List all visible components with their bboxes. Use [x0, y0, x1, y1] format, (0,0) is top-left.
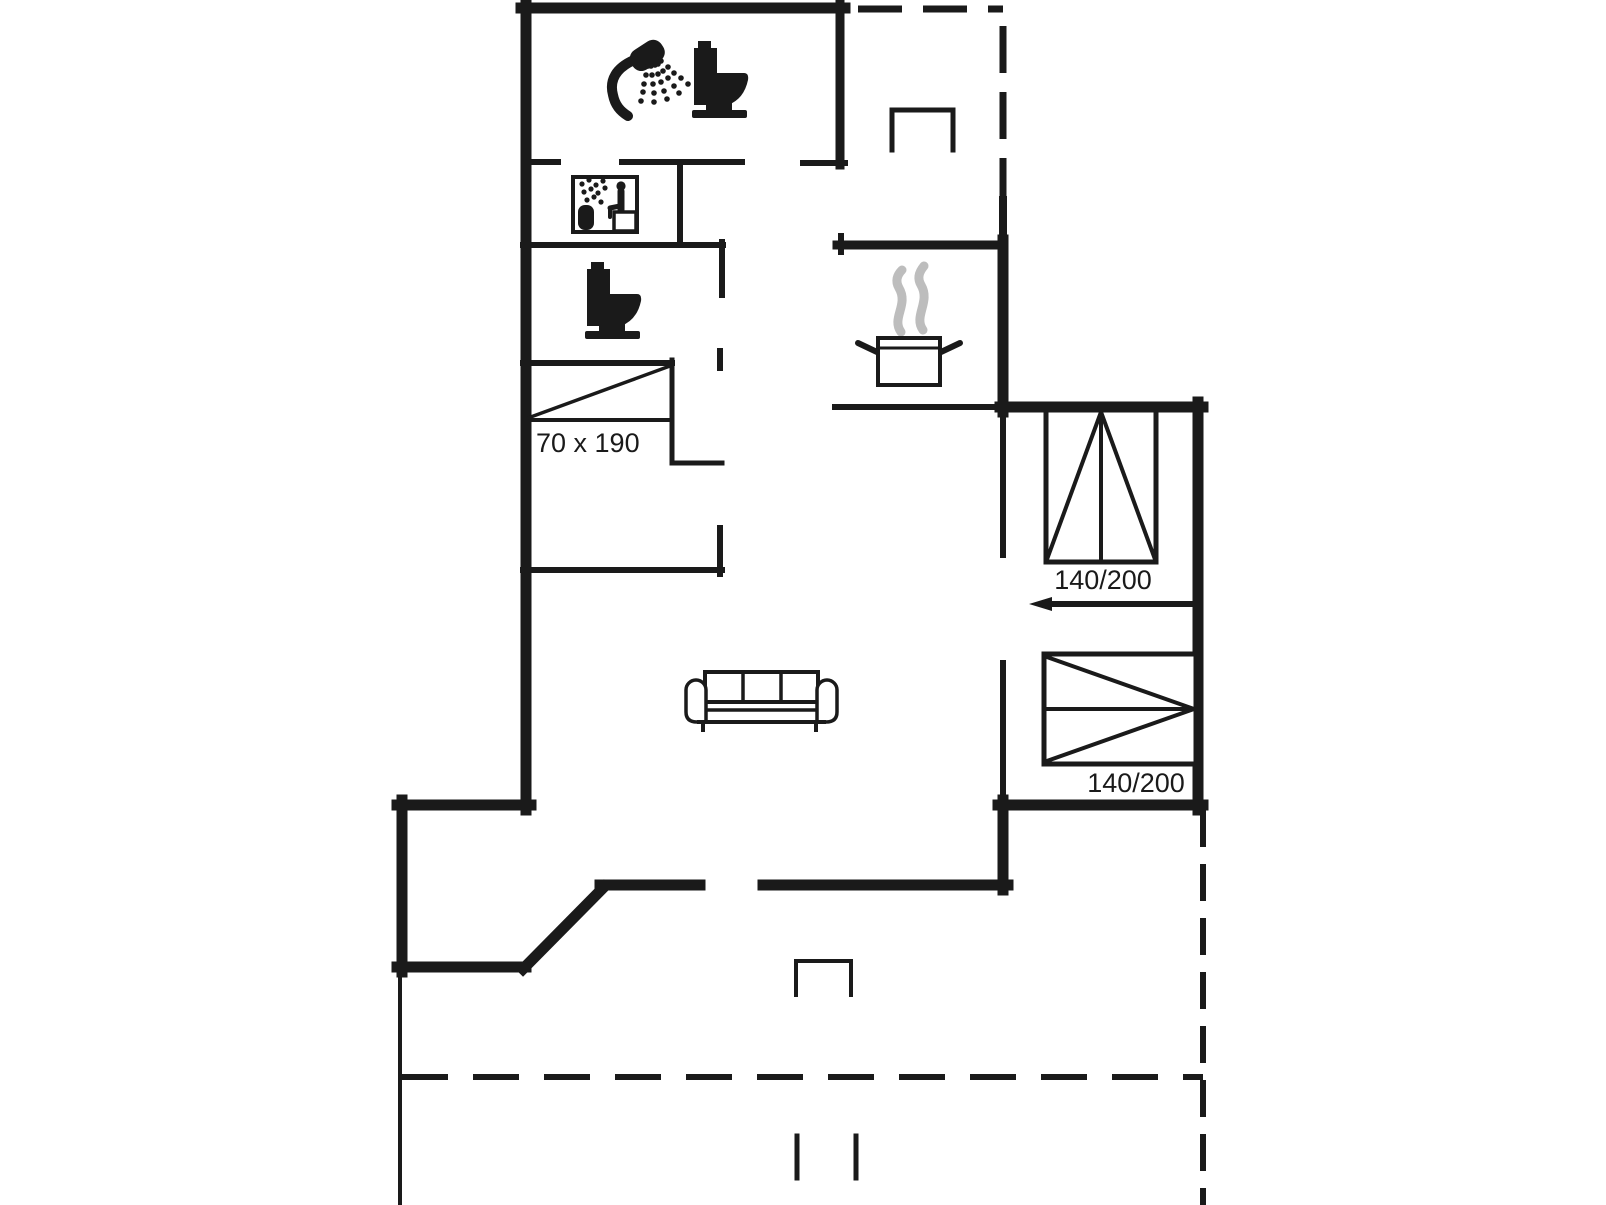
steam-left [897, 270, 902, 332]
floor-plan-drawing: 70 x 190 140/200 140/200 [0, 0, 1606, 1205]
double-bed-upper-size-label: 140/200 [1054, 565, 1152, 595]
sofa-icon [686, 672, 837, 732]
sauna-icon [573, 177, 637, 232]
double-bed-upper-symbol [1046, 410, 1156, 562]
double-bed-lower-symbol [1044, 654, 1196, 764]
single-bed-size-label: 70 x 190 [536, 428, 640, 458]
double-bed-lower-size-label: 140/200 [1087, 768, 1185, 798]
floor-plan: 70 x 190 140/200 140/200 [0, 0, 1606, 1205]
steam-right [919, 266, 924, 330]
paper-background [0, 0, 1606, 1205]
